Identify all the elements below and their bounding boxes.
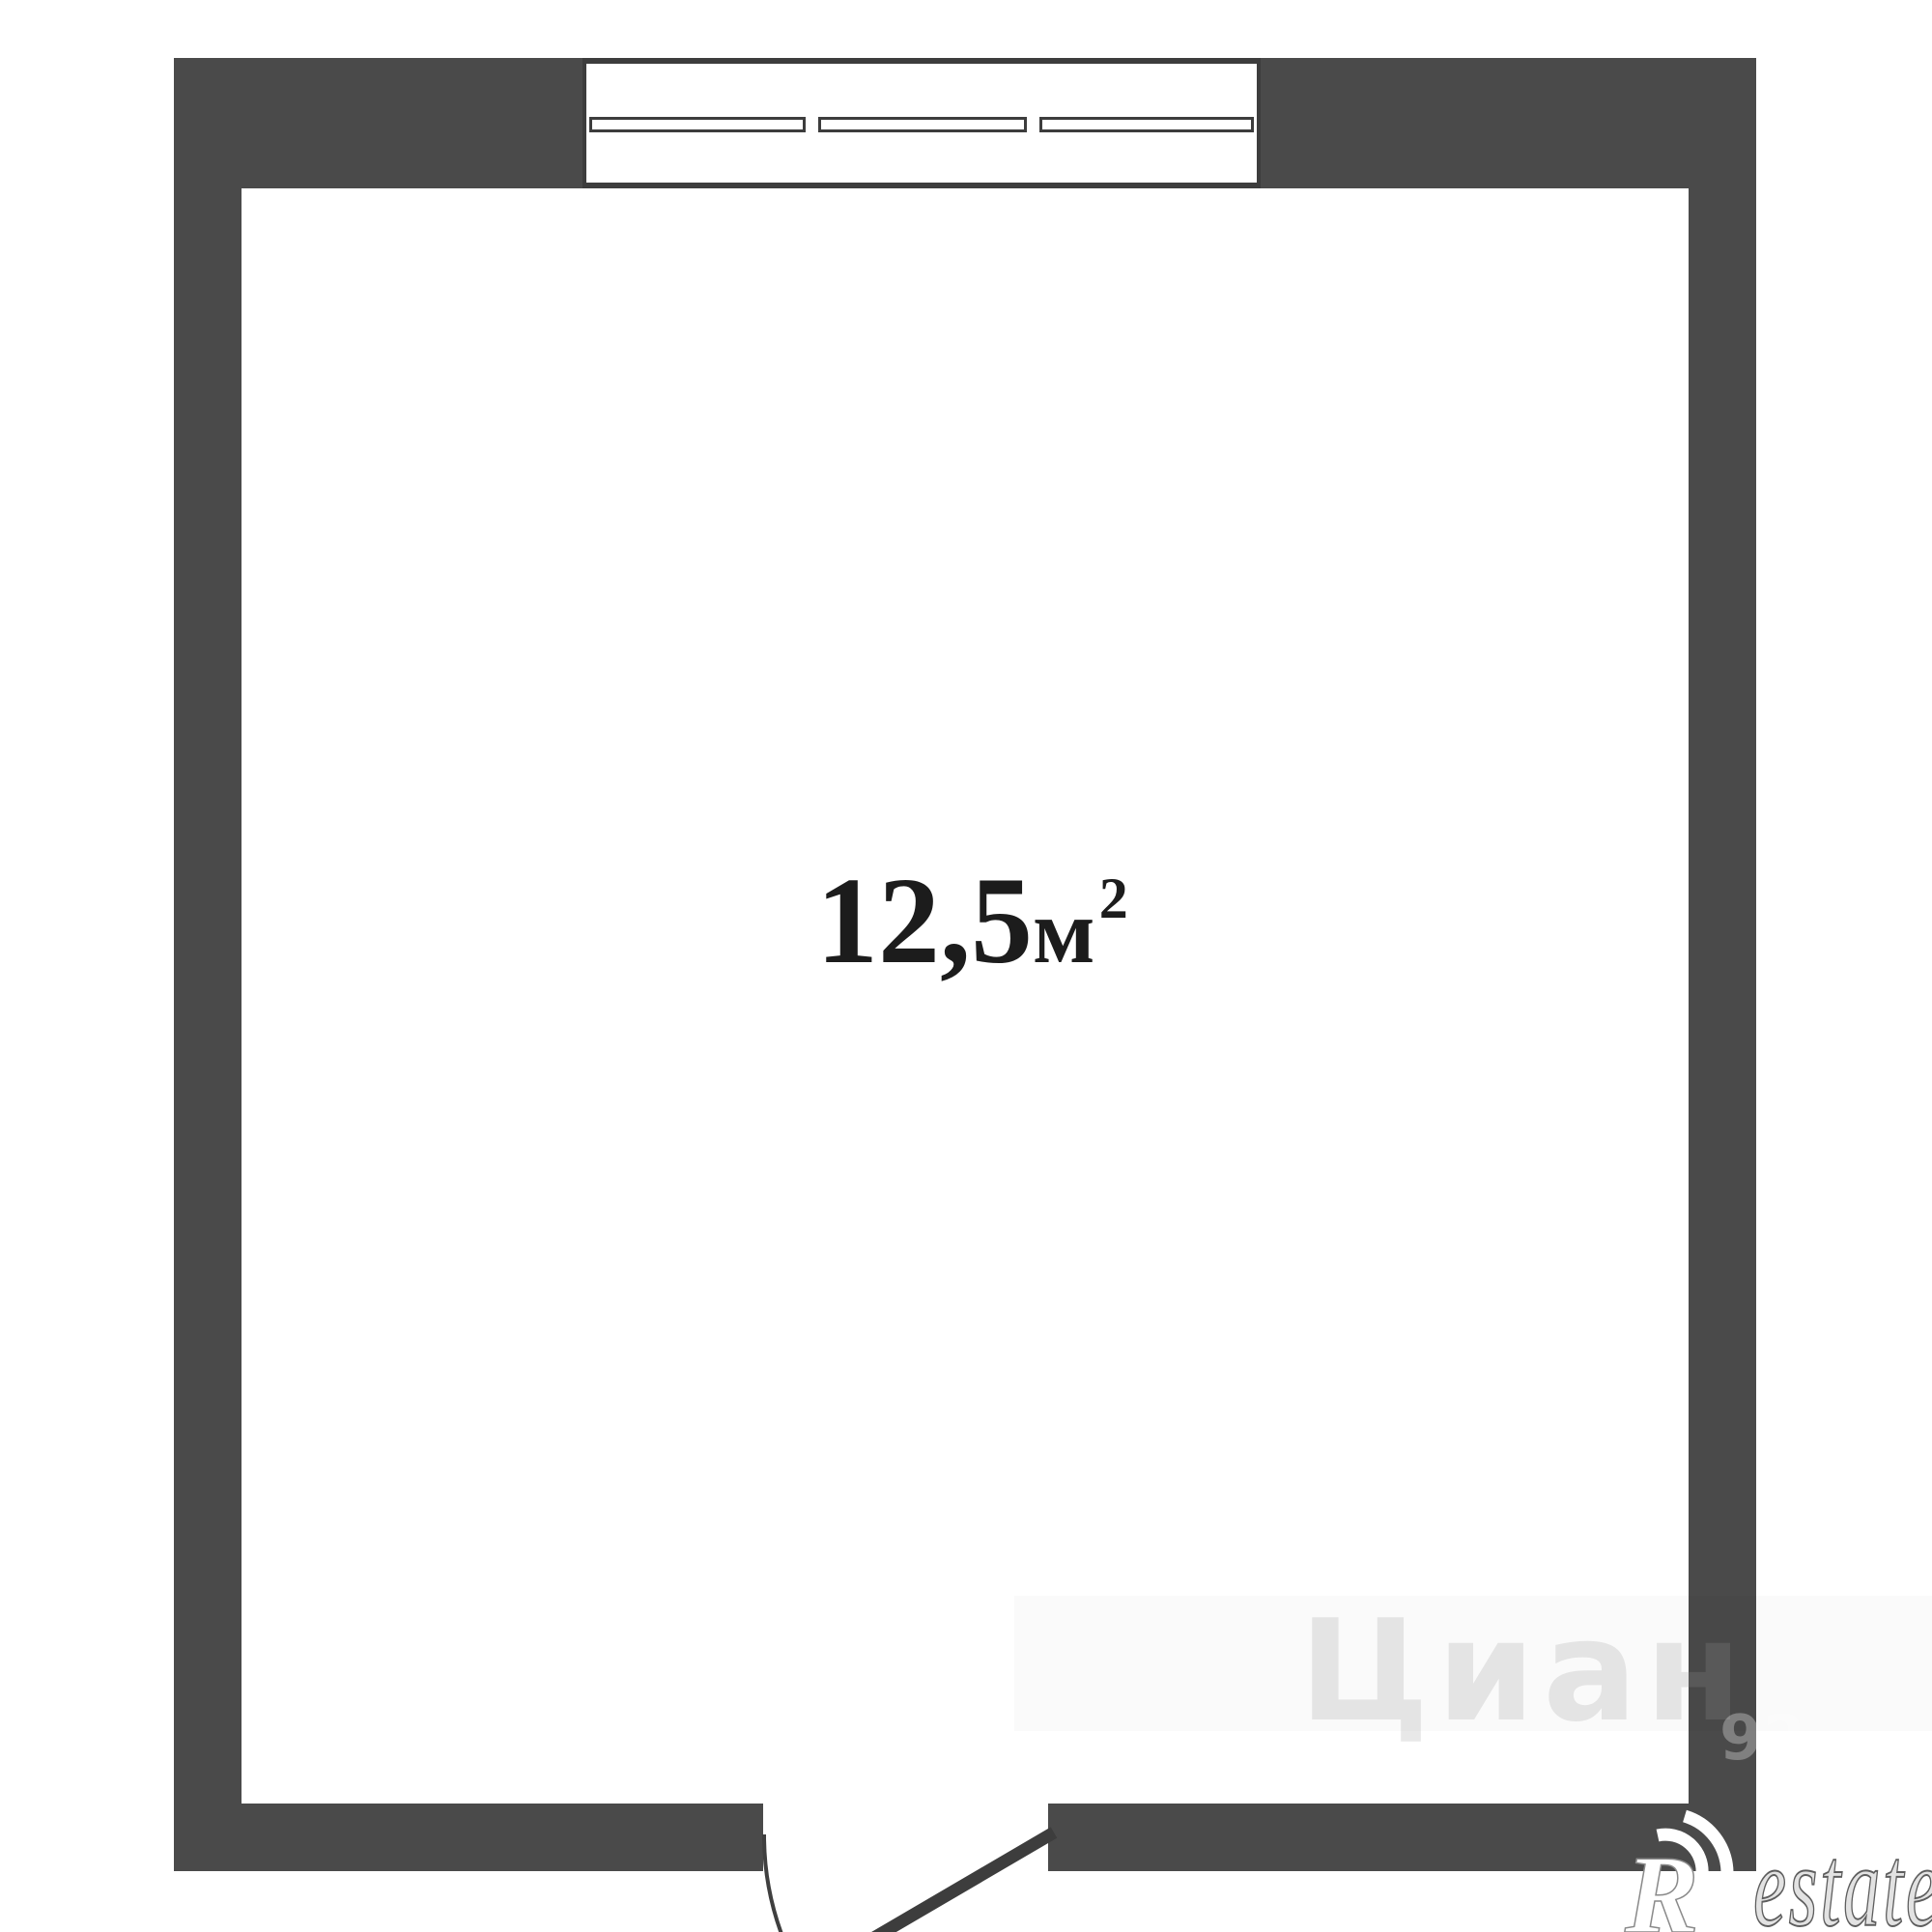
- door-leaf: [872, 1833, 1054, 1932]
- agency-logo-text: estate: [1753, 1829, 1932, 1932]
- floor-plan: 12,5м2 Циан 92 R estate: [0, 0, 1932, 1932]
- door-swing-arc: [764, 1834, 781, 1932]
- area-exponent: 2: [1099, 867, 1128, 930]
- area-value: 12,5: [816, 852, 1033, 989]
- agency-logo-initial: R: [1624, 1833, 1699, 1932]
- room-area-label: 12,5м2: [816, 859, 1128, 982]
- area-unit: м: [1033, 880, 1095, 982]
